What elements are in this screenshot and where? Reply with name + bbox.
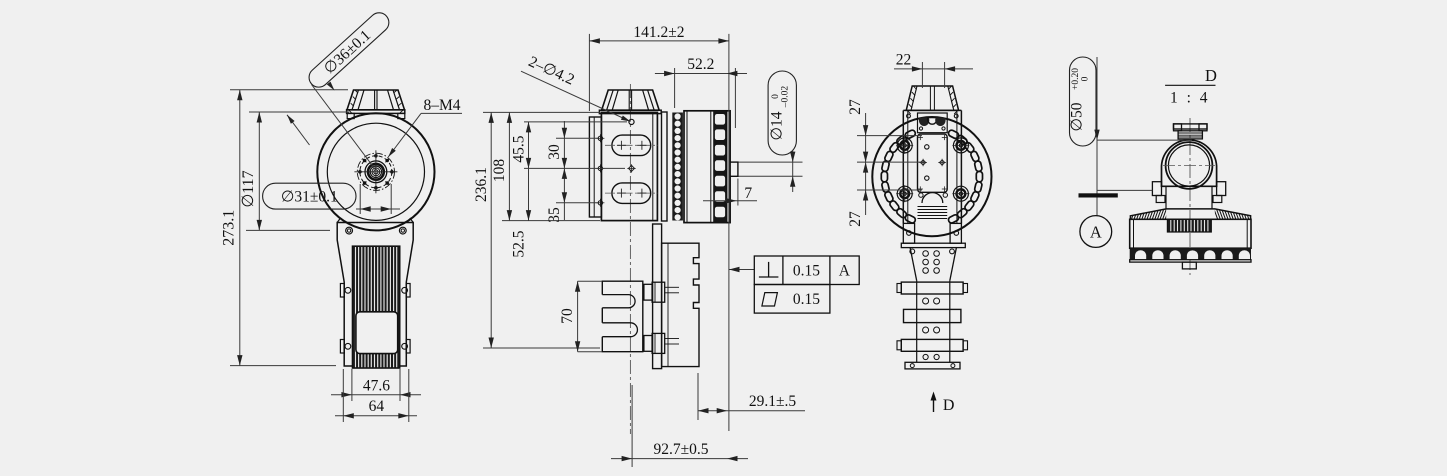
svg-text:1 : 4: 1 : 4 <box>1170 90 1210 107</box>
svg-text:64: 64 <box>369 398 385 415</box>
svg-text:∅50: ∅50 <box>1069 102 1086 131</box>
svg-text:A: A <box>1090 223 1102 242</box>
svg-text:92.7±0.5: 92.7±0.5 <box>653 441 708 458</box>
svg-text:0: 0 <box>1080 76 1090 81</box>
svg-text:29.1±.5: 29.1±.5 <box>749 393 797 410</box>
svg-text:27: 27 <box>847 211 864 227</box>
svg-text:52.5: 52.5 <box>511 230 528 257</box>
svg-text:108: 108 <box>491 159 508 183</box>
svg-text:52.2: 52.2 <box>687 56 714 73</box>
svg-text:0: 0 <box>771 94 781 99</box>
svg-text:47.6: 47.6 <box>363 377 390 394</box>
svg-text:+0.20: +0.20 <box>1071 68 1081 90</box>
svg-text:45.5: 45.5 <box>511 135 528 162</box>
svg-text:30: 30 <box>546 144 563 160</box>
svg-text:141.2±2: 141.2±2 <box>633 24 684 41</box>
svg-text:∅31±0.1: ∅31±0.1 <box>281 189 338 206</box>
svg-text:27: 27 <box>847 99 864 115</box>
svg-text:0.15: 0.15 <box>793 262 820 279</box>
svg-text:7: 7 <box>744 185 752 202</box>
svg-text:A: A <box>839 263 851 280</box>
svg-text:∅14: ∅14 <box>769 111 786 140</box>
svg-text:–0.02: –0.02 <box>781 86 791 109</box>
svg-text:8–M4: 8–M4 <box>423 97 460 114</box>
svg-text:∅117: ∅117 <box>240 170 257 207</box>
svg-text:70: 70 <box>559 308 576 324</box>
svg-text:273.1: 273.1 <box>221 210 238 246</box>
svg-text:D: D <box>943 397 955 414</box>
svg-text:236.1: 236.1 <box>473 167 490 202</box>
svg-text:35: 35 <box>546 207 563 223</box>
svg-text:0.15: 0.15 <box>793 291 820 308</box>
svg-text:22: 22 <box>896 52 912 69</box>
svg-text:D: D <box>1205 66 1217 85</box>
